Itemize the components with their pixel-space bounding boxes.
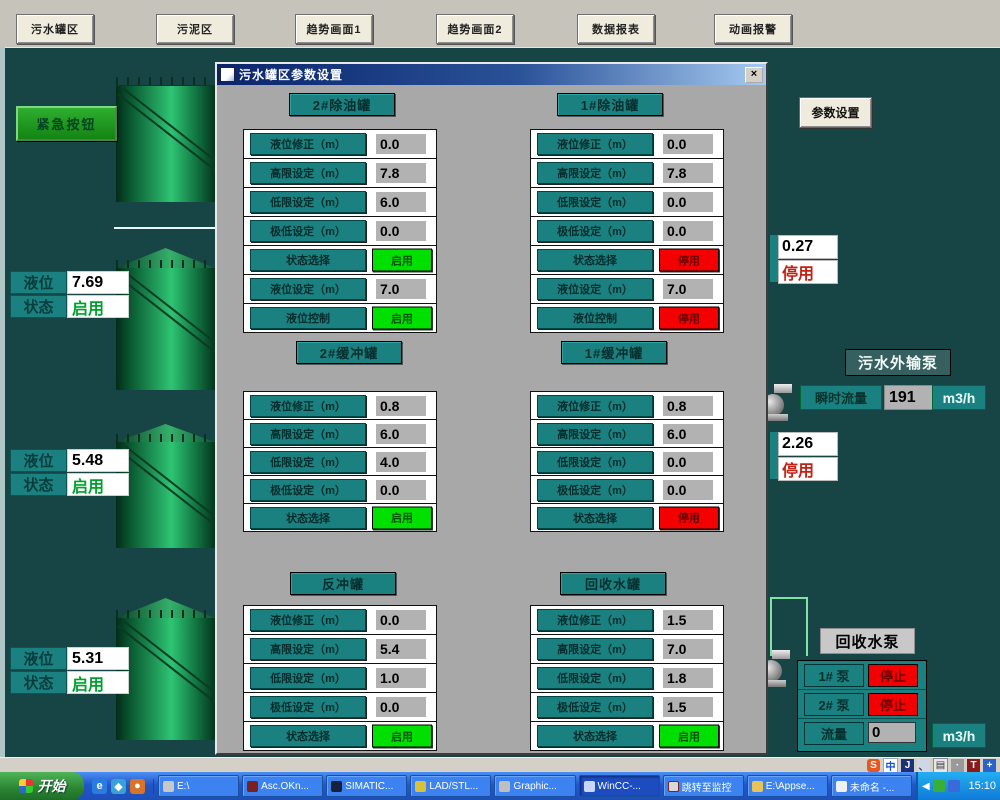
level-label: 液位 xyxy=(10,271,67,294)
level-value: 5.48 xyxy=(67,449,129,472)
status-label: 状态 xyxy=(10,295,67,318)
group-title-backwash-tank: 反冲罐 xyxy=(290,572,396,595)
param-value-field[interactable]: 0.0 xyxy=(663,452,713,472)
state-toggle-button[interactable]: 启用 xyxy=(372,506,432,529)
taskbar: 开始 e ◆ ● E:\ Asc.OKn... SIMATIC... LAD/S… xyxy=(0,772,1000,800)
clipped-label xyxy=(770,235,778,282)
param-label: 状态选择 xyxy=(250,249,366,271)
param-value-field[interactable]: 7.8 xyxy=(376,163,426,183)
param-row: 状态选择 启用 xyxy=(244,722,436,750)
param-row: 极低设定（m） 0.0 xyxy=(244,476,436,504)
level-label: 液位 xyxy=(10,647,67,670)
tank-4-graphic xyxy=(116,618,215,740)
param-label: 液位修正（m） xyxy=(537,609,653,631)
param-value-field[interactable]: 0.8 xyxy=(376,396,426,416)
param-value-field[interactable]: 0.0 xyxy=(376,221,426,241)
start-label: 开始 xyxy=(38,776,66,796)
pump-2-label: 2# 泵 xyxy=(804,693,864,716)
wincc-icon xyxy=(584,781,595,792)
right-level-readout-2: 2.26 停用 xyxy=(770,432,838,482)
status-label: 状态 xyxy=(10,671,67,694)
toolbar-button-trend-screen-1[interactable]: 趋势画面1 xyxy=(295,14,373,44)
network-icon[interactable] xyxy=(948,780,960,792)
close-icon[interactable]: × xyxy=(745,67,763,83)
param-label: 低限设定（m） xyxy=(250,667,366,689)
walkway-line xyxy=(114,227,218,229)
param-row: 状态选择 停用 xyxy=(531,246,723,275)
status-label: 状态 xyxy=(10,473,67,496)
param-label: 低限设定（m） xyxy=(537,667,653,689)
task-button[interactable]: LAD/STL... xyxy=(410,775,491,797)
tank-1-graphic xyxy=(116,86,215,202)
group-panel-recovery-water-tank: 液位修正（m） 1.5 高限设定（m） 7.0 低限设定（m） 1.8 极低设定… xyxy=(530,605,724,751)
param-label: 液位修正（m） xyxy=(250,609,366,631)
top-toolbar: 污水罐区 污泥区 趋势画面1 趋势画面2 数据报表 动画报警 xyxy=(0,0,1000,48)
flow-label: 流量 xyxy=(804,722,864,745)
param-row: 液位修正（m） 0.0 xyxy=(244,130,436,159)
clipped-label xyxy=(770,432,778,479)
level-value: 7.69 xyxy=(67,271,129,294)
param-value-field[interactable]: 1.0 xyxy=(376,668,426,688)
folder-icon xyxy=(752,781,763,792)
clock: 15:10 xyxy=(968,780,996,792)
param-label: 状态选择 xyxy=(250,725,366,747)
drive-icon xyxy=(163,781,174,792)
group-panel-2-deoiling-tank: 液位修正（m） 0.0 高限设定（m） 7.8 低限设定（m） 6.0 极低设定… xyxy=(243,129,437,333)
state-toggle-button[interactable]: 启用 xyxy=(659,725,719,748)
internet-explorer-icon[interactable]: e xyxy=(92,779,107,794)
dialog-icon xyxy=(220,67,235,82)
instant-flow-unit: m3/h xyxy=(932,385,986,410)
param-row: 高限设定（m） 7.0 xyxy=(531,635,723,664)
param-row: 低限设定（m） 4.0 xyxy=(244,448,436,476)
level-label: 液位 xyxy=(10,449,67,472)
state-toggle-button[interactable]: 启用 xyxy=(372,725,432,748)
param-row: 状态选择 启用 xyxy=(244,504,436,531)
param-row: 状态选择 启用 xyxy=(531,722,723,750)
tool-icon[interactable]: T xyxy=(967,759,980,772)
param-label: 极低设定（m） xyxy=(250,220,366,242)
param-label: 液位设定（m） xyxy=(250,278,366,300)
param-row: 低限设定（m） 1.8 xyxy=(531,664,723,693)
instant-flow-label: 瞬时流量 xyxy=(800,385,882,410)
param-label: 低限设定（m） xyxy=(250,191,366,213)
status-value: 启用 xyxy=(67,295,129,318)
param-value-field[interactable]: 7.0 xyxy=(663,639,713,659)
param-row: 状态选择 停用 xyxy=(531,504,723,531)
param-label: 液位修正（m） xyxy=(250,395,366,417)
dialog-title: 污水罐区参数设置 xyxy=(239,66,745,83)
param-value-field[interactable]: 1.5 xyxy=(663,697,713,717)
param-label: 高限设定（m） xyxy=(250,423,366,445)
quick-launch-icon[interactable]: ◆ xyxy=(111,779,126,794)
param-row: 低限设定（m） 0.0 xyxy=(531,188,723,217)
tank-2-graphic xyxy=(116,268,215,390)
group-title-2-deoiling-tank: 2#除油罐 xyxy=(289,93,395,116)
param-row: 液位修正（m） 0.8 xyxy=(531,392,723,420)
param-row: 液位控制 停用 xyxy=(531,304,723,332)
param-label: 极低设定（m） xyxy=(537,479,653,501)
param-row: 极低设定（m） 0.0 xyxy=(244,693,436,722)
dot-icon[interactable]: · xyxy=(951,759,964,772)
task-button-active[interactable]: WinCC-... xyxy=(579,775,660,797)
tank-2-readout: 液位 7.69 状态 启用 xyxy=(10,271,130,319)
param-row: 液位修正（m） 0.0 xyxy=(244,606,436,635)
param-row: 高限设定（m） 5.4 xyxy=(244,635,436,664)
param-value-field[interactable]: 7.0 xyxy=(376,279,426,299)
group-panel-1-buffer-tank: 液位修正（m） 0.8 高限设定（m） 6.0 低限设定（m） 0.0 极低设定… xyxy=(530,391,724,532)
recovery-flow-unit: m3/h xyxy=(932,723,986,748)
level-value: 5.31 xyxy=(67,647,129,670)
simatic-icon xyxy=(331,781,342,792)
task-button[interactable]: E:\Appse... xyxy=(747,775,828,797)
toolbar-button-data-report[interactable]: 数据报表 xyxy=(577,14,655,44)
toolbar-button-alarm-screen[interactable]: 动画报警 xyxy=(714,14,792,44)
emergency-button[interactable]: 紧急按钮 xyxy=(16,106,117,141)
options-icon[interactable]: + xyxy=(983,759,996,772)
graphics-icon xyxy=(499,781,510,792)
group-panel-backwash-tank: 液位修正（m） 0.0 高限设定（m） 5.4 低限设定（m） 1.0 极低设定… xyxy=(243,605,437,751)
language-icon[interactable]: 中 xyxy=(883,758,898,773)
task-button[interactable]: 未命名 -... xyxy=(831,775,912,797)
right-level-readout-1: 0.27 停用 xyxy=(770,235,838,285)
param-label: 状态选择 xyxy=(250,507,366,529)
task-button[interactable]: SIMATIC... xyxy=(326,775,407,797)
task-button[interactable]: Asc.OKn... xyxy=(242,775,323,797)
group-panel-1-deoiling-tank: 液位修正（m） 0.0 高限设定（m） 7.8 低限设定（m） 0.0 极低设定… xyxy=(530,129,724,333)
param-label: 低限设定（m） xyxy=(537,451,653,473)
param-row: 低限设定（m） 1.0 xyxy=(244,664,436,693)
param-value-field[interactable]: 5.4 xyxy=(376,639,426,659)
state-toggle-button[interactable]: 停用 xyxy=(659,506,719,529)
param-label: 液位控制 xyxy=(537,307,653,329)
state-toggle-button[interactable]: 停用 xyxy=(659,249,719,272)
pump-1-label: 1# 泵 xyxy=(804,664,864,687)
param-value-field[interactable]: 0.0 xyxy=(376,697,426,717)
tray-chevron-icon[interactable]: ◀ xyxy=(922,781,930,792)
jump-icon xyxy=(668,781,679,792)
toolbar-button-sewage-tank-area[interactable]: 污水罐区 xyxy=(16,14,94,44)
param-row: 高限设定（m） 6.0 xyxy=(531,420,723,448)
recovery-pump-panel: 1# 泵 停止 2# 泵 停止 流量 0 xyxy=(797,660,927,752)
param-row: 极低设定（m） 0.0 xyxy=(531,217,723,246)
language-bar[interactable]: S 中 J 、 ▤ · T + xyxy=(867,758,996,773)
param-value-field[interactable]: 6.0 xyxy=(663,424,713,444)
param-row: 液位修正（m） 0.8 xyxy=(244,392,436,420)
param-label: 高限设定（m） xyxy=(250,638,366,660)
group-title-2-buffer-tank: 2#缓冲罐 xyxy=(296,341,402,364)
param-label: 液位修正（m） xyxy=(537,395,653,417)
status-value: 停用 xyxy=(778,260,838,284)
state-toggle-button[interactable]: 停用 xyxy=(659,307,719,330)
group-title-1-deoiling-tank: 1#除油罐 xyxy=(557,93,663,116)
windows-logo-icon xyxy=(19,779,33,793)
app-icon xyxy=(247,781,258,792)
param-value-field[interactable]: 1.5 xyxy=(663,610,713,630)
param-label: 状态选择 xyxy=(537,249,653,271)
param-row: 高限设定（m） 7.8 xyxy=(244,159,436,188)
param-value-field[interactable]: 0.0 xyxy=(663,221,713,241)
param-label: 极低设定（m） xyxy=(537,220,653,242)
param-label: 高限设定（m） xyxy=(537,423,653,445)
param-value-field[interactable]: 0.0 xyxy=(376,480,426,500)
param-row: 高限设定（m） 7.8 xyxy=(531,159,723,188)
ime-icon[interactable]: S xyxy=(867,759,880,772)
lad-stl-icon xyxy=(415,781,426,792)
param-label: 状态选择 xyxy=(537,725,653,747)
parameter-settings-button[interactable]: 参数设置 xyxy=(799,97,872,128)
param-value-field[interactable]: 6.0 xyxy=(376,424,426,444)
keyboard-icon[interactable]: ▤ xyxy=(933,758,948,773)
tank-4-readout: 液位 5.31 状态 启用 xyxy=(10,647,130,695)
param-value-field[interactable]: 4.0 xyxy=(376,452,426,472)
param-row: 液位设定（m） 7.0 xyxy=(531,275,723,304)
param-value-field[interactable]: 0.0 xyxy=(663,134,713,154)
window-left-edge xyxy=(0,47,5,757)
recovery-pump-title: 回收水泵 xyxy=(820,628,915,654)
task-buttons: E:\ Asc.OKn... SIMATIC... LAD/STL... Gra… xyxy=(154,775,916,797)
status-value: 启用 xyxy=(67,473,129,496)
param-value-field[interactable]: 0.8 xyxy=(663,396,713,416)
status-value: 启用 xyxy=(67,671,129,694)
parameter-settings-dialog: 污水罐区参数设置 × 2#除油罐 1#除油罐 2#缓冲罐 1#缓冲罐 反冲罐 回… xyxy=(215,62,768,755)
param-label: 液位修正（m） xyxy=(537,133,653,155)
param-label: 低限设定（m） xyxy=(537,191,653,213)
tank-3-graphic xyxy=(116,442,215,548)
param-row: 极低设定（m） 1.5 xyxy=(531,693,723,722)
param-value-field[interactable]: 0.0 xyxy=(376,134,426,154)
start-button[interactable]: 开始 xyxy=(0,772,84,800)
param-label: 高限设定（m） xyxy=(250,162,366,184)
param-label: 高限设定（m） xyxy=(537,162,653,184)
punct-icon[interactable]: 、 xyxy=(917,759,930,772)
system-tray: ◀ 15:10 xyxy=(916,772,1000,800)
tray-icon[interactable] xyxy=(933,780,945,792)
param-label: 高限设定（m） xyxy=(537,638,653,660)
task-button[interactable]: 跳转至监控 xyxy=(663,775,744,797)
param-row: 液位控制 启用 xyxy=(244,304,436,332)
param-row: 液位修正（m） 0.0 xyxy=(531,130,723,159)
param-row: 液位修正（m） 1.5 xyxy=(531,606,723,635)
param-value-field[interactable]: 1.8 xyxy=(663,668,713,688)
ime-mode-icon[interactable]: J xyxy=(901,759,914,772)
pump-2-status[interactable]: 停止 xyxy=(868,693,918,716)
task-button[interactable]: E:\ xyxy=(158,775,239,797)
param-value-field[interactable]: 6.0 xyxy=(376,192,426,212)
param-value-field[interactable]: 0.0 xyxy=(663,480,713,500)
param-label: 极低设定（m） xyxy=(250,696,366,718)
param-row: 液位设定（m） 7.0 xyxy=(244,275,436,304)
dialog-title-bar[interactable]: 污水罐区参数设置 × xyxy=(217,64,766,85)
param-row: 极低设定（m） 0.0 xyxy=(531,476,723,504)
quick-launch: e ◆ ● xyxy=(84,779,154,794)
state-toggle-button[interactable]: 启用 xyxy=(372,307,432,330)
param-label: 液位修正（m） xyxy=(250,133,366,155)
group-title-1-buffer-tank: 1#缓冲罐 xyxy=(561,341,667,364)
task-button[interactable]: Graphic... xyxy=(494,775,575,797)
export-pump-title: 污水外输泵 xyxy=(845,349,951,376)
param-value-field[interactable]: 7.0 xyxy=(663,279,713,299)
param-label: 液位控制 xyxy=(250,307,366,329)
group-panel-2-buffer-tank: 液位修正（m） 0.8 高限设定（m） 6.0 低限设定（m） 4.0 极低设定… xyxy=(243,391,437,532)
param-value-field[interactable]: 0.0 xyxy=(663,192,713,212)
status-strip: S 中 J 、 ▤ · T + xyxy=(0,757,1000,773)
pump-1-status[interactable]: 停止 xyxy=(868,664,918,687)
dialog-body: 2#除油罐 1#除油罐 2#缓冲罐 1#缓冲罐 反冲罐 回收水罐 液位修正（m）… xyxy=(217,85,766,753)
tank-3-readout: 液位 5.48 状态 启用 xyxy=(10,449,130,497)
param-label: 低限设定（m） xyxy=(250,451,366,473)
toolbar-button-trend-screen-2[interactable]: 趋势画面2 xyxy=(436,14,514,44)
level-value: 0.27 xyxy=(778,235,838,259)
param-value-field[interactable]: 0.0 xyxy=(376,610,426,630)
param-row: 低限设定（m） 0.0 xyxy=(531,448,723,476)
param-label: 状态选择 xyxy=(537,507,653,529)
quick-launch-icon[interactable]: ● xyxy=(130,779,145,794)
param-row: 极低设定（m） 0.0 xyxy=(244,217,436,246)
toolbar-button-sludge-area[interactable]: 污泥区 xyxy=(156,14,234,44)
level-value: 2.26 xyxy=(778,432,838,456)
untitled-doc-icon xyxy=(836,781,847,792)
flow-value: 0 xyxy=(868,722,916,743)
param-label: 极低设定（m） xyxy=(537,696,653,718)
status-value: 停用 xyxy=(778,457,838,481)
param-value-field[interactable]: 7.8 xyxy=(663,163,713,183)
param-row: 状态选择 启用 xyxy=(244,246,436,275)
instant-flow-value: 191 xyxy=(884,385,934,410)
state-toggle-button[interactable]: 启用 xyxy=(372,249,432,272)
param-row: 低限设定（m） 6.0 xyxy=(244,188,436,217)
param-label: 极低设定（m） xyxy=(250,479,366,501)
param-row: 高限设定（m） 6.0 xyxy=(244,420,436,448)
param-label: 液位设定（m） xyxy=(537,278,653,300)
group-title-recovery-tank: 回收水罐 xyxy=(560,572,666,595)
